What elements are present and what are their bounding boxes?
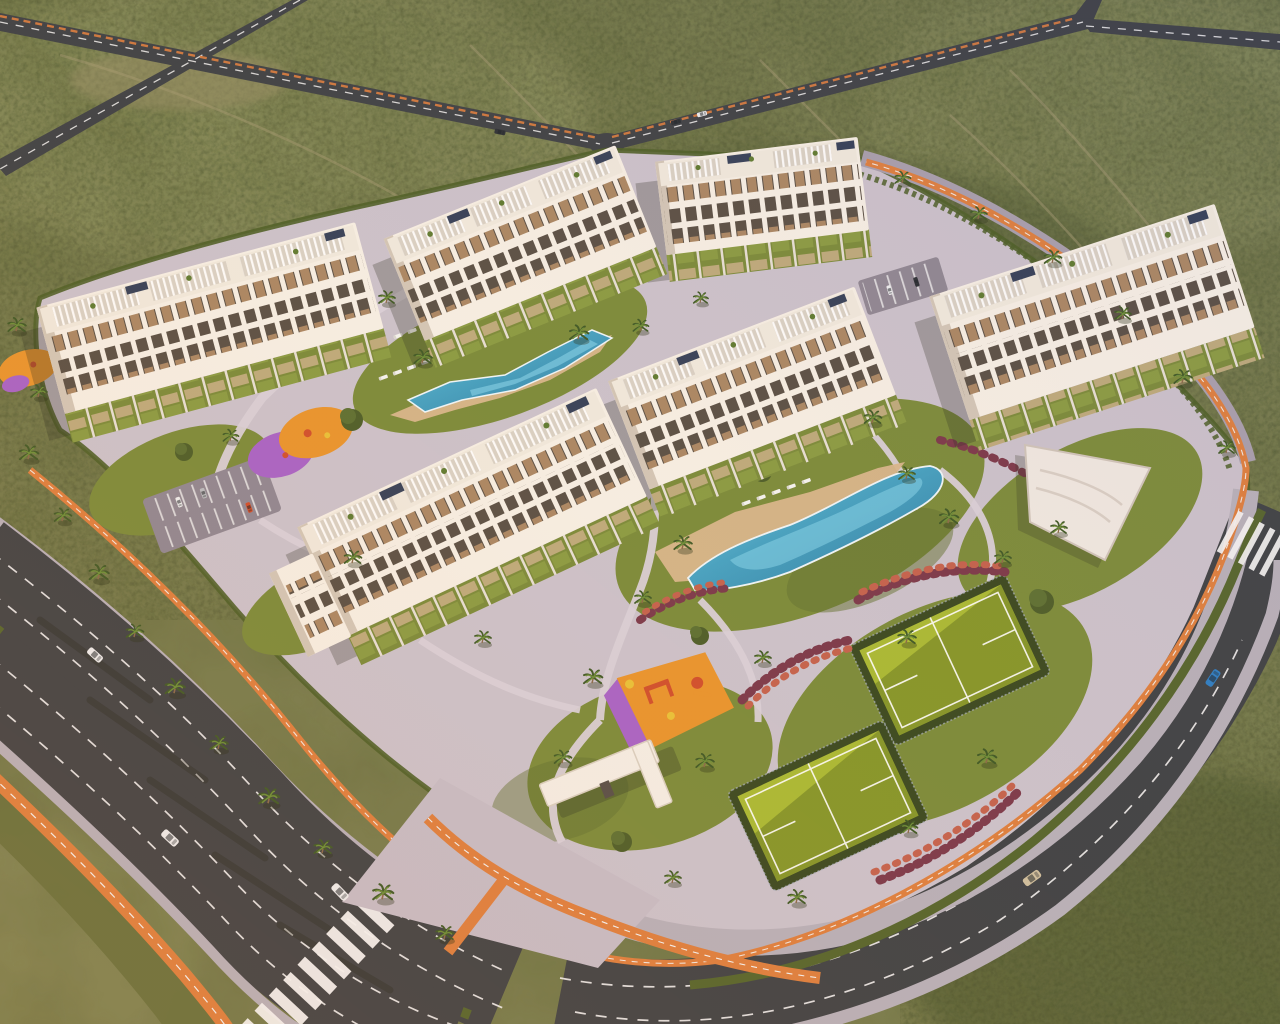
render-canvas [0, 0, 1280, 1024]
sunset-light-wash [0, 0, 1280, 1024]
aerial-render [0, 0, 1280, 1024]
